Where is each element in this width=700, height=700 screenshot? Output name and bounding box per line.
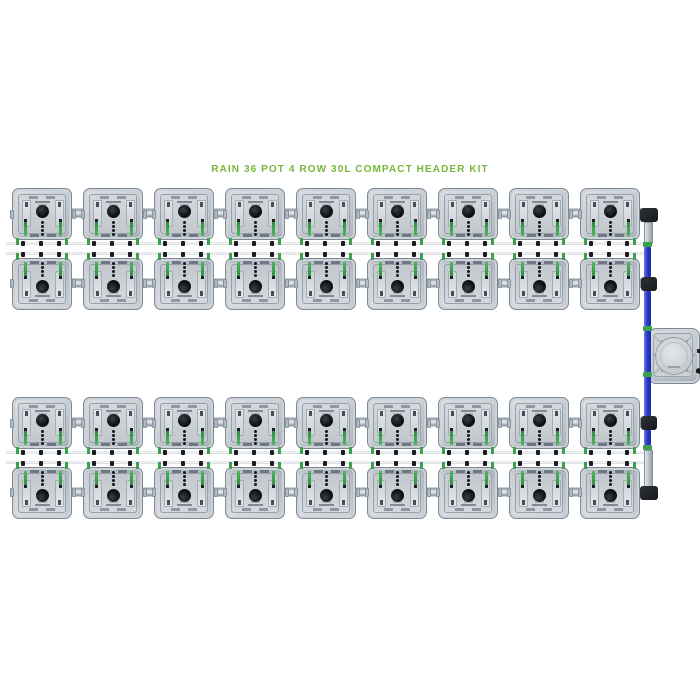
pot-foot <box>536 461 540 466</box>
pot-foot <box>323 461 327 466</box>
channel-inlet-mark <box>522 202 525 207</box>
pipe-connection-tab <box>143 279 147 288</box>
pot-top-label <box>614 405 623 408</box>
pot-foot <box>181 241 185 246</box>
pipe-connection-tab <box>152 488 156 497</box>
pot-clip <box>207 447 210 454</box>
pot-foot <box>234 461 238 466</box>
pot-top-label <box>543 508 552 511</box>
pot-top-label <box>242 196 251 199</box>
pot-top-label <box>384 405 393 408</box>
pipe-connection-tab <box>10 488 14 497</box>
pot-foot <box>465 252 469 257</box>
pot-foot <box>110 450 114 455</box>
channel-inlet-mark <box>342 411 345 416</box>
channel-inlet-mark <box>25 202 28 207</box>
pot-bottom-label <box>402 443 411 446</box>
pot-top-label <box>543 299 552 302</box>
channel-inlet-mark <box>484 202 487 207</box>
pot-micro-text <box>177 201 192 203</box>
tank-screw <box>686 370 688 372</box>
pipe-connection-tab <box>507 419 511 428</box>
pot-top-label <box>330 508 339 511</box>
plant-site-hole <box>178 414 191 427</box>
pot-foot <box>341 252 345 257</box>
pot-foot <box>483 461 487 466</box>
pot-foot <box>536 450 540 455</box>
channel-inlet-mark <box>380 500 383 505</box>
pot-foot <box>305 241 309 246</box>
pot-bottom-label <box>118 234 127 237</box>
plant-site-hole <box>249 205 262 218</box>
pipe-connection-tab <box>507 279 511 288</box>
pot-foot <box>625 241 629 246</box>
pot-clip <box>136 253 139 260</box>
pot-clip <box>491 447 494 454</box>
drip-line-dot <box>396 274 399 277</box>
drip-line-dot <box>183 479 186 482</box>
drip-line-dot <box>538 475 541 478</box>
pot-clip <box>65 253 68 260</box>
plant-site-hole <box>604 280 617 293</box>
pot-bottom-label <box>456 234 465 237</box>
pipe-connection-tab <box>294 419 298 428</box>
channel-inlet-mark <box>342 291 345 296</box>
pipe-connection-tab <box>152 419 156 428</box>
pot-top-label <box>259 196 268 199</box>
pot-clip <box>491 253 494 260</box>
pot-clip <box>371 447 374 454</box>
pot-bottom-label <box>527 443 536 446</box>
channel-inlet-mark <box>200 202 203 207</box>
inter-row-feed-line <box>6 252 648 255</box>
drip-stake-right <box>201 262 204 279</box>
pot-micro-text <box>532 295 547 297</box>
pot-clip <box>442 447 445 454</box>
drip-stake-right <box>343 471 346 488</box>
drip-line-dot <box>112 438 115 441</box>
pot-bottom-label <box>47 443 56 446</box>
pot-bottom-label <box>101 470 110 473</box>
pot-bottom-label <box>101 261 110 264</box>
pot-foot <box>376 241 380 246</box>
drip-line-dot <box>538 229 541 232</box>
plant-site-hole <box>178 489 191 502</box>
pipe-connection-tab <box>427 488 431 497</box>
pot-foot <box>199 461 203 466</box>
pot-bottom-label <box>544 234 553 237</box>
pot-foot <box>252 241 256 246</box>
pot-module <box>296 467 356 519</box>
drip-line-dot <box>254 233 257 236</box>
pot-bottom-label <box>30 443 39 446</box>
drip-line-dot <box>183 225 186 228</box>
drip-line-dot <box>183 483 186 486</box>
pot-foot <box>625 450 629 455</box>
drip-stake-right <box>485 262 488 279</box>
pot-clip <box>633 238 636 245</box>
pot-clip <box>300 462 303 469</box>
pot-clip <box>420 253 423 260</box>
pot-bottom-label <box>260 443 269 446</box>
pot-foot <box>341 450 345 455</box>
pot-bottom-label <box>331 470 340 473</box>
pipe-connection-tab <box>152 279 156 288</box>
pot-clip <box>16 253 19 260</box>
pipe-connection-tab <box>294 210 298 219</box>
pot-foot <box>607 450 611 455</box>
pot-micro-text <box>390 201 405 203</box>
pipe-connection-tab <box>356 279 360 288</box>
pot-bottom-label <box>30 234 39 237</box>
pot-bottom-label <box>615 443 624 446</box>
pot-top-label <box>384 299 393 302</box>
channel-inlet-mark <box>271 202 274 207</box>
pot-bottom-label <box>314 470 323 473</box>
inter-row-feed-line <box>6 242 648 245</box>
drip-line-dot <box>41 266 44 269</box>
channel-inlet-mark <box>200 291 203 296</box>
pot-clip <box>513 238 516 245</box>
pot-bottom-label <box>118 261 127 264</box>
channel-inlet-mark <box>555 411 558 416</box>
pipe-connection-tab <box>569 419 573 428</box>
pot-foot <box>199 450 203 455</box>
drip-line-dot <box>609 430 612 433</box>
pot-micro-text <box>106 295 121 297</box>
drip-stake-left <box>95 219 98 236</box>
pot-clip <box>207 253 210 260</box>
pot-clip <box>633 253 636 260</box>
pot-bottom-label <box>544 443 553 446</box>
channel-inlet-mark <box>96 202 99 207</box>
pot-module <box>296 397 356 449</box>
pot-foot <box>92 252 96 257</box>
drip-line-dot <box>112 274 115 277</box>
drip-line-dot <box>41 221 44 224</box>
pot-bottom-label <box>598 443 607 446</box>
drip-line-dot <box>183 442 186 445</box>
pot-bottom-label <box>385 234 394 237</box>
pipe-connection-tab <box>223 488 227 497</box>
pot-clip <box>158 447 161 454</box>
drip-stake-right <box>627 471 630 488</box>
channel-inlet-mark <box>626 411 629 416</box>
drip-line-dot <box>467 434 470 437</box>
pot-clip <box>349 462 352 469</box>
pot-micro-text <box>177 295 192 297</box>
pot-bottom-label <box>101 443 110 446</box>
pot-foot <box>518 461 522 466</box>
drip-stake-right <box>343 428 346 445</box>
pot-clip <box>65 462 68 469</box>
pot-bottom-label <box>615 470 624 473</box>
plant-site-hole <box>391 205 404 218</box>
drip-stake-left <box>24 262 27 279</box>
pot-top-label <box>455 299 464 302</box>
drip-stake-left <box>450 262 453 279</box>
drip-stake-right <box>272 262 275 279</box>
pot-top-label <box>472 508 481 511</box>
drip-line-dot <box>254 221 257 224</box>
drip-line-dot <box>396 475 399 478</box>
pot-micro-text <box>248 410 263 412</box>
drip-stake-right <box>59 262 62 279</box>
channel-inlet-mark <box>200 500 203 505</box>
pot-module <box>83 188 143 240</box>
drip-line-dot <box>41 270 44 273</box>
pot-top-label <box>29 405 38 408</box>
header-feed-pipe <box>644 377 651 416</box>
drip-line-dot <box>467 266 470 269</box>
channel-inlet-mark <box>25 500 28 505</box>
pipe-connection-tab <box>427 419 431 428</box>
pot-top-label <box>597 299 606 302</box>
plant-site-hole <box>462 489 475 502</box>
drip-stake-left <box>24 471 27 488</box>
plant-site-hole <box>320 489 333 502</box>
plant-site-hole <box>36 205 49 218</box>
drip-line-dot <box>254 479 257 482</box>
plant-site-hole <box>533 280 546 293</box>
pot-module <box>296 188 356 240</box>
pipe-connection-tab <box>498 279 502 288</box>
channel-inlet-mark <box>593 202 596 207</box>
pot-clip <box>513 447 516 454</box>
pot-bottom-label <box>456 261 465 264</box>
pot-top-label <box>614 196 623 199</box>
pot-module <box>83 258 143 310</box>
channel-inlet-mark <box>451 500 454 505</box>
channel-inlet-mark <box>309 500 312 505</box>
pipe-connection-tab <box>498 210 502 219</box>
pot-bottom-label <box>385 470 394 473</box>
drip-stake-right <box>627 428 630 445</box>
pipe-connection-tab <box>365 488 369 497</box>
pot-bottom-label <box>260 234 269 237</box>
pot-top-label <box>597 405 606 408</box>
inter-row-feed-line <box>6 461 648 464</box>
drip-line-dot <box>396 270 399 273</box>
header-pipe-segment <box>644 222 653 244</box>
pot-micro-text <box>390 504 405 506</box>
pot-module <box>154 397 214 449</box>
pot-micro-text <box>177 504 192 506</box>
pot-top-label <box>46 508 55 511</box>
pot-foot <box>536 241 540 246</box>
pot-top-label <box>100 405 109 408</box>
pot-micro-text <box>461 201 476 203</box>
drip-line-dot <box>396 479 399 482</box>
pot-foot <box>394 241 398 246</box>
drip-line-dot <box>396 483 399 486</box>
pipe-connection-tab <box>10 279 14 288</box>
pot-clip <box>136 238 139 245</box>
pipe-connection-tab <box>294 279 298 288</box>
pot-module <box>438 188 498 240</box>
drip-stake-left <box>521 471 524 488</box>
pot-micro-text <box>35 410 50 412</box>
pot-clip <box>87 462 90 469</box>
pot-foot <box>57 252 61 257</box>
drip-stake-left <box>308 428 311 445</box>
pot-clip <box>136 462 139 469</box>
pot-foot <box>518 241 522 246</box>
pot-top-label <box>259 299 268 302</box>
drip-line-dot <box>467 471 470 474</box>
plant-site-hole <box>462 205 475 218</box>
drip-line-dot <box>112 270 115 273</box>
channel-inlet-mark <box>129 500 132 505</box>
pipe-connection-tab <box>507 210 511 219</box>
pot-bottom-label <box>101 234 110 237</box>
pot-top-label <box>242 508 251 511</box>
drip-stake-left <box>592 219 595 236</box>
drip-stake-right <box>59 471 62 488</box>
pot-bottom-label <box>172 261 181 264</box>
drip-line-dot <box>538 233 541 236</box>
pot-foot <box>607 252 611 257</box>
pot-bottom-label <box>402 234 411 237</box>
pot-clip <box>584 462 587 469</box>
channel-inlet-mark <box>626 291 629 296</box>
drip-stake-left <box>166 428 169 445</box>
pipe-connection-tab <box>214 279 218 288</box>
pot-bottom-label <box>47 470 56 473</box>
pipe-connection-tab <box>10 419 14 428</box>
pot-micro-text <box>177 410 192 412</box>
pot-bottom-label <box>615 234 624 237</box>
drip-line-dot <box>41 442 44 445</box>
pot-bottom-label <box>473 261 482 264</box>
pot-bottom-label <box>118 443 127 446</box>
drip-line-dot <box>41 479 44 482</box>
drip-line-dot <box>538 471 541 474</box>
drip-line-dot <box>41 262 44 265</box>
pot-top-label <box>46 196 55 199</box>
plant-site-hole <box>320 414 333 427</box>
pipe-coupler <box>643 326 652 331</box>
pot-bottom-label <box>314 261 323 264</box>
drip-line-dot <box>325 434 328 437</box>
pot-foot <box>110 252 114 257</box>
channel-inlet-mark <box>96 411 99 416</box>
channel-inlet-mark <box>522 291 525 296</box>
tank-lid-marking <box>668 366 680 368</box>
pot-foot <box>57 461 61 466</box>
channel-inlet-mark <box>555 500 558 505</box>
drip-stake-left <box>237 471 240 488</box>
pot-foot <box>447 450 451 455</box>
drip-line-dot <box>538 274 541 277</box>
pot-micro-text <box>603 201 618 203</box>
pot-micro-text <box>461 295 476 297</box>
channel-inlet-mark <box>58 291 61 296</box>
pot-micro-text <box>603 504 618 506</box>
pot-micro-text <box>35 295 50 297</box>
drip-line-dot <box>609 221 612 224</box>
drip-line-dot <box>396 442 399 445</box>
drip-line-dot <box>467 225 470 228</box>
drip-line-dot <box>325 274 328 277</box>
drip-line-dot <box>325 475 328 478</box>
drip-line-dot <box>467 233 470 236</box>
drip-line-dot <box>41 233 44 236</box>
drip-line-dot <box>396 262 399 265</box>
header-feed-pipe <box>644 247 651 277</box>
channel-inlet-mark <box>25 291 28 296</box>
drip-line-dot <box>112 483 115 486</box>
channel-inlet-mark <box>238 500 241 505</box>
pot-micro-text <box>248 504 263 506</box>
drip-line-dot <box>325 479 328 482</box>
pot-bottom-label <box>172 443 181 446</box>
drip-line-dot <box>254 483 257 486</box>
pot-foot <box>376 450 380 455</box>
channel-inlet-mark <box>413 202 416 207</box>
pipe-connection-tab <box>72 419 76 428</box>
drip-stake-left <box>95 471 98 488</box>
pot-micro-text <box>390 295 405 297</box>
pot-module <box>367 467 427 519</box>
pot-top-label <box>313 405 322 408</box>
drip-line-dot <box>254 270 257 273</box>
channel-inlet-mark <box>167 202 170 207</box>
header-tank <box>648 328 700 384</box>
pot-bottom-label <box>30 261 39 264</box>
pot-top-label <box>171 508 180 511</box>
drip-stake-right <box>627 219 630 236</box>
pot-top-label <box>313 508 322 511</box>
pot-top-label <box>597 508 606 511</box>
pot-clip <box>87 238 90 245</box>
pot-clip <box>136 447 139 454</box>
channel-inlet-mark <box>58 411 61 416</box>
pot-bottom-label <box>385 443 394 446</box>
pot-top-label <box>117 299 126 302</box>
pot-clip <box>278 462 281 469</box>
drip-stake-right <box>201 219 204 236</box>
channel-inlet-mark <box>129 411 132 416</box>
pot-module <box>225 258 285 310</box>
drip-line-dot <box>538 438 541 441</box>
pot-top-label <box>100 196 109 199</box>
pot-micro-text <box>106 504 121 506</box>
pot-clip <box>371 238 374 245</box>
pot-clip <box>229 238 232 245</box>
drip-line-dot <box>112 266 115 269</box>
pot-bottom-label <box>402 261 411 264</box>
pot-foot <box>625 252 629 257</box>
drip-line-dot <box>325 483 328 486</box>
pot-bottom-label <box>172 470 181 473</box>
channel-inlet-mark <box>167 291 170 296</box>
pot-foot <box>270 241 274 246</box>
pot-clip <box>16 238 19 245</box>
drip-line-dot <box>112 434 115 437</box>
drip-stake-right <box>414 262 417 279</box>
pot-module <box>580 258 640 310</box>
drip-stake-right <box>130 471 133 488</box>
drip-line-dot <box>609 434 612 437</box>
pot-foot <box>394 252 398 257</box>
pot-micro-text <box>35 504 50 506</box>
pot-top-label <box>472 196 481 199</box>
pot-foot <box>92 241 96 246</box>
channel-inlet-mark <box>58 500 61 505</box>
pipe-connection-tab <box>81 419 85 428</box>
drip-stake-left <box>450 471 453 488</box>
